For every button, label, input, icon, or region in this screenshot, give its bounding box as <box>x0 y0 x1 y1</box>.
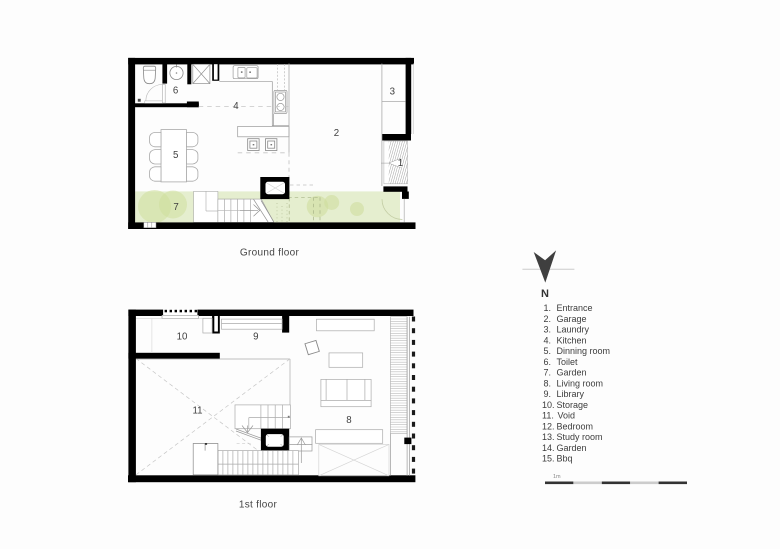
svg-text:8: 8 <box>346 415 351 426</box>
svg-text:8.: 8. <box>544 378 552 388</box>
svg-text:5: 5 <box>173 150 178 161</box>
svg-text:Storage: Storage <box>557 400 589 410</box>
svg-text:10.: 10. <box>542 400 555 410</box>
svg-text:14.: 14. <box>542 443 555 453</box>
svg-text:7.: 7. <box>544 368 552 378</box>
svg-text:10: 10 <box>177 332 188 343</box>
svg-text:Laundry: Laundry <box>557 325 590 335</box>
svg-text:Kitchen: Kitchen <box>557 335 587 345</box>
svg-text:Study room: Study room <box>557 432 603 442</box>
svg-text:Dinning room: Dinning room <box>557 346 611 356</box>
svg-text:6.: 6. <box>544 357 552 367</box>
svg-text:Ground floor: Ground floor <box>240 248 300 259</box>
svg-text:3.: 3. <box>544 325 552 335</box>
svg-text:1st floor: 1st floor <box>239 499 278 510</box>
svg-text:1.: 1. <box>544 303 552 313</box>
svg-text:Toilet: Toilet <box>557 357 579 367</box>
svg-text:3: 3 <box>390 87 395 98</box>
svg-text:2: 2 <box>334 128 339 139</box>
svg-text:Living room: Living room <box>557 378 604 388</box>
svg-text:4: 4 <box>233 101 239 112</box>
svg-text:Garden: Garden <box>557 443 587 453</box>
svg-text:15.: 15. <box>542 454 555 464</box>
svg-text:Entrance: Entrance <box>557 303 593 313</box>
svg-text:Garage: Garage <box>557 314 587 324</box>
svg-text:1m: 1m <box>553 474 561 480</box>
svg-text:Bbq: Bbq <box>557 454 573 464</box>
svg-text:Void: Void <box>558 411 576 421</box>
svg-text:4.: 4. <box>544 335 552 345</box>
svg-text:13.: 13. <box>542 432 555 442</box>
svg-text:9.: 9. <box>544 389 552 399</box>
svg-text:1: 1 <box>398 158 403 169</box>
svg-text:12.: 12. <box>542 421 555 431</box>
svg-text:11.: 11. <box>542 411 554 421</box>
svg-text:N: N <box>541 288 549 300</box>
svg-text:Bedroom: Bedroom <box>557 421 594 431</box>
svg-text:11: 11 <box>192 406 202 417</box>
svg-text:7: 7 <box>173 202 178 213</box>
svg-text:2.: 2. <box>544 314 552 324</box>
svg-text:Garden: Garden <box>557 368 587 378</box>
svg-text:Library: Library <box>557 389 585 399</box>
svg-text:9: 9 <box>253 332 258 343</box>
svg-text:5.: 5. <box>544 346 552 356</box>
svg-text:6: 6 <box>173 86 178 97</box>
